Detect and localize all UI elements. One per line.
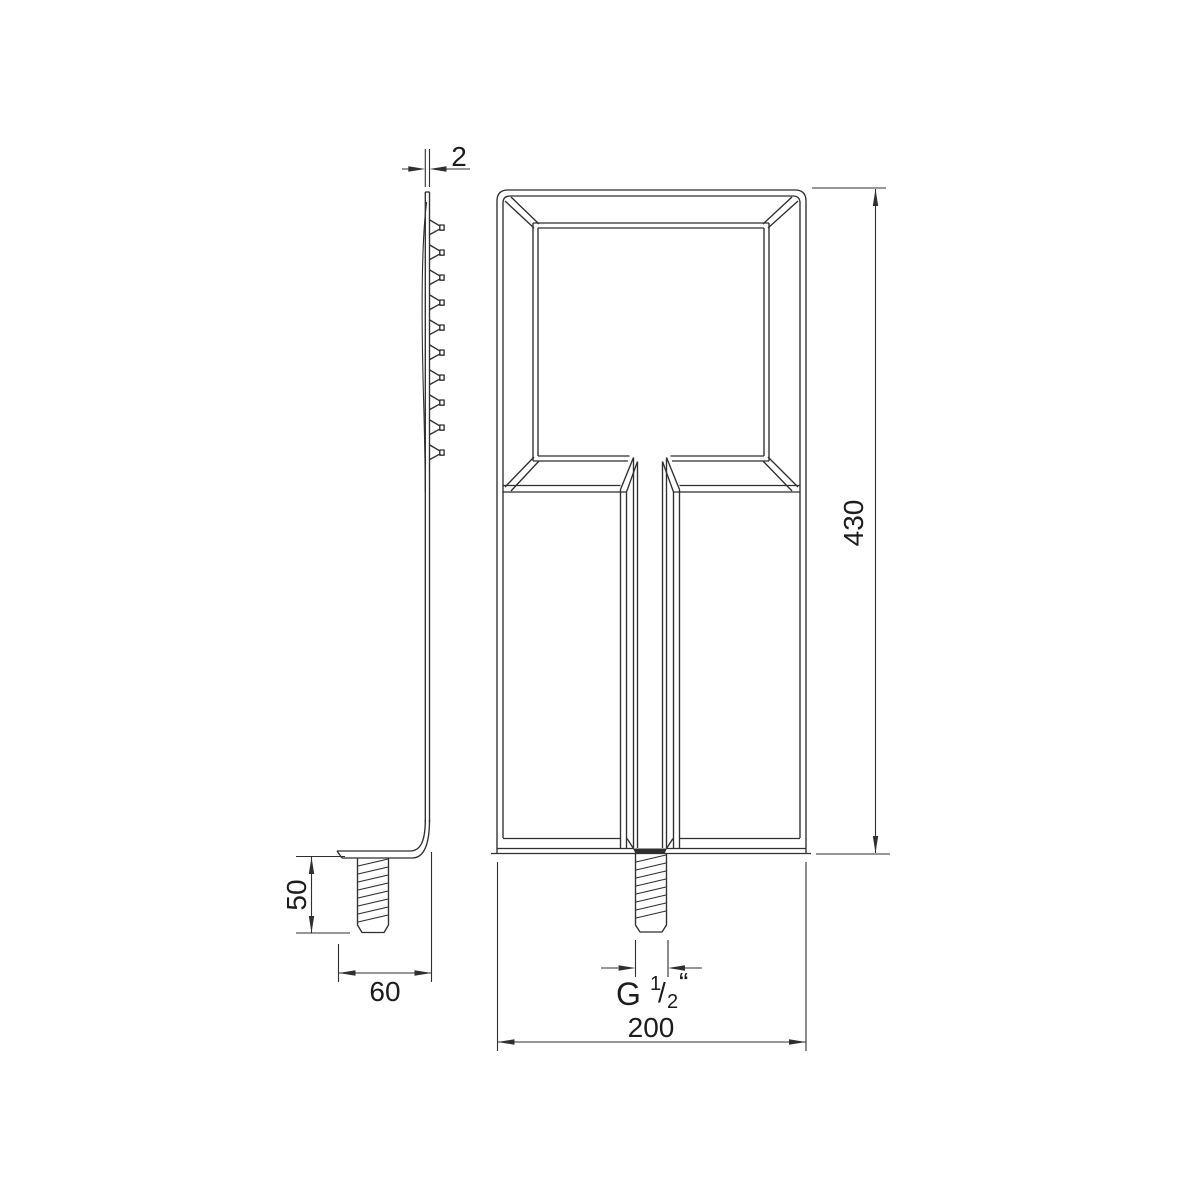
- dim-label-overall-width: 200: [628, 1012, 675, 1043]
- dim-label-thickness: 2: [451, 141, 467, 172]
- technical-drawing: 2 50 60: [0, 0, 1200, 1200]
- drain-channel: [621, 458, 680, 849]
- drawing-canvas: 2 50 60: [0, 0, 1200, 1200]
- corner-bevels: [505, 197, 798, 492]
- dim-plate-thickness: 2: [402, 141, 470, 187]
- channel-bevel-right: [663, 458, 680, 493]
- front-view: 430 200 G 1 / 2 “: [491, 188, 890, 1051]
- dim-label-thread: G 1 / 2 “: [616, 965, 688, 1014]
- funnel-rim-bottom: [503, 486, 800, 493]
- dim-label-stud-length: 50: [281, 879, 312, 910]
- dim-label-overall-height: 430: [838, 500, 869, 547]
- channel-bevel-left: [621, 458, 638, 493]
- flange-bottom-line: [342, 820, 430, 858]
- dim-thread-size: G 1 / 2 “: [601, 940, 702, 1014]
- thread-hatching-front: [636, 855, 666, 918]
- threaded-stud-front: [636, 854, 667, 932]
- dim-label-flange-width: 60: [369, 976, 400, 1007]
- thread-hatching-side: [358, 859, 388, 922]
- side-view: 2 50 60: [281, 141, 470, 1007]
- outer-body: [497, 190, 806, 853]
- funnel-inner-square: [533, 223, 769, 461]
- serration-teeth: [430, 220, 444, 460]
- dim-overall-height: 430: [812, 188, 890, 854]
- threaded-stud-side: [358, 858, 389, 933]
- flange-top-line: [337, 820, 425, 851]
- plate-profile: [337, 192, 430, 858]
- dim-stud-length: 50: [281, 857, 350, 934]
